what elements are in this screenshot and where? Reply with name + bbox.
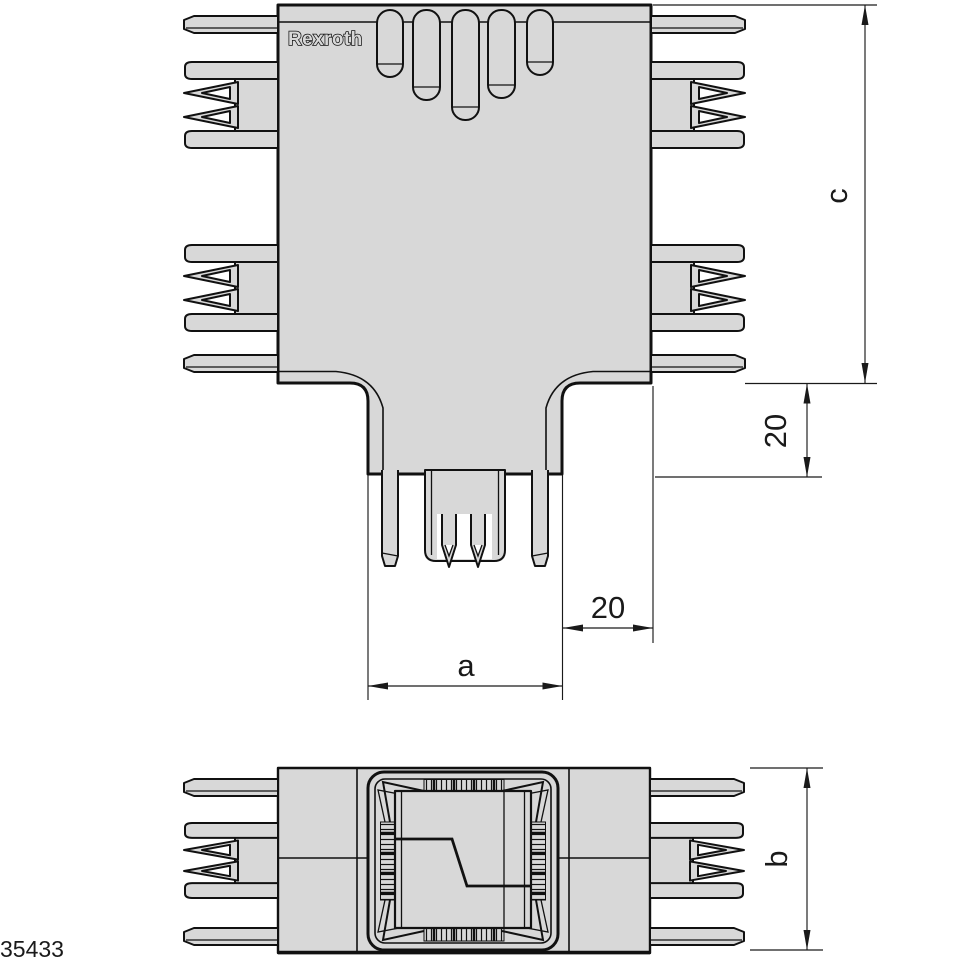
top-view: Rexroth [184,5,745,567]
tab-arm [184,779,278,796]
figure-number: 35433 [0,936,64,962]
tab-arm [184,16,278,33]
tab-arm [650,779,744,796]
dimension-a: a [368,648,563,690]
dim-label-20-horizontal: 20 [591,590,625,625]
snap-connector-arm [184,823,278,898]
socket [395,791,531,928]
tab-arm [184,928,278,945]
tab-arm [650,928,744,945]
snap-connector-arm [651,245,745,331]
dim-label-c: c [819,188,854,204]
front-view [184,768,744,953]
dim-label-20-vertical: 20 [758,414,793,448]
front-view-right-arms [650,779,744,945]
tab-arm [184,355,278,372]
snap-connector-arm [184,62,278,148]
snap-connector-arm [650,823,744,898]
technical-drawing-canvas: Rexroth [0,0,964,964]
leg-prongs [382,470,548,567]
tab-arm [651,16,745,33]
dim-label-b: b [759,850,794,867]
dimension-20-vertical: 20 [758,384,811,478]
snap-connector-arm [651,62,745,148]
center-boss [368,772,558,950]
dim-label-a: a [457,648,475,683]
rib-strip-bottom [424,928,504,941]
top-view-left-arms [184,16,278,372]
brand-logo: Rexroth [288,29,363,50]
dimension-b: b [759,768,811,950]
top-view-right-arms [651,16,745,372]
rib-strip-top [424,780,504,792]
front-view-left-arms [184,779,278,945]
dimension-c: c [819,5,869,383]
tab-arm [651,355,745,372]
snap-connector-arm [184,245,278,331]
dimension-20-horizontal: 20 [563,590,653,632]
